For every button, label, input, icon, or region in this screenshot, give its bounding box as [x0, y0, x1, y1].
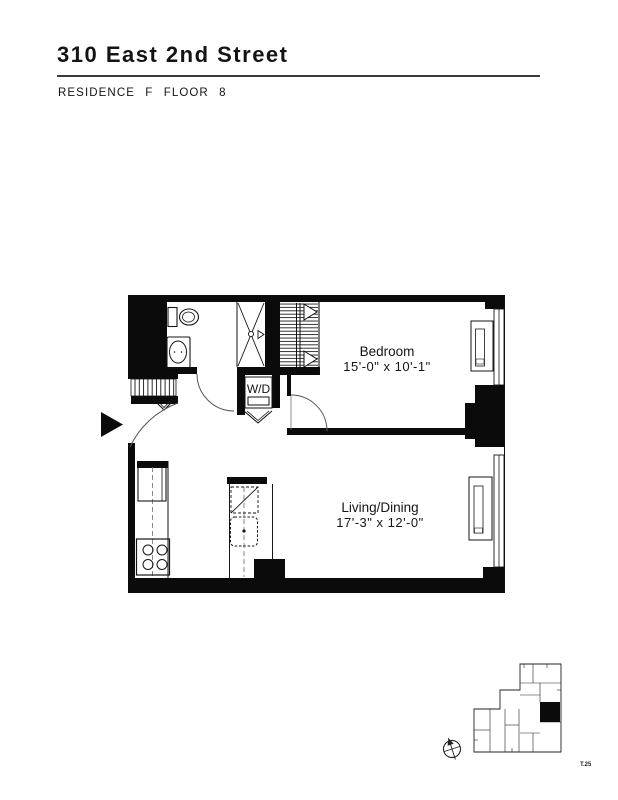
washer-dryer-label: W/D — [247, 382, 271, 396]
toilet-fixture — [168, 308, 199, 327]
entry-door-swing — [130, 403, 178, 447]
closet-hanger-rod — [133, 379, 175, 396]
bathroom-door-swing — [197, 374, 234, 411]
floor-plan-drawing: W/D — [0, 0, 618, 800]
wall-closet-top — [128, 373, 178, 379]
entry-closet — [131, 379, 176, 410]
wall-bottom-right-block — [483, 567, 505, 593]
living-window — [469, 455, 504, 567]
floor-plan-page: 310 East 2nd Street RESIDENCE F FLOOR 8 — [0, 0, 618, 800]
wd-bifold-door — [244, 411, 272, 423]
living-dining-dimensions: 17'-3" x 12'-0" — [336, 515, 423, 530]
shower — [238, 303, 264, 366]
wall-right-mid-step — [465, 403, 475, 439]
wall-top-right-block — [485, 295, 505, 309]
wall-wd-right — [272, 375, 280, 408]
bedroom-dimensions: 15'-0" x 10'-1" — [343, 359, 430, 374]
shower-door-marker — [258, 331, 264, 339]
wall-bottom — [128, 578, 505, 593]
key-plan — [474, 664, 561, 752]
bedroom-window — [471, 309, 504, 385]
sink-fixture — [167, 337, 190, 368]
bathroom — [167, 302, 237, 368]
wall-shower-stairs — [265, 295, 280, 375]
wall-island-cap — [227, 477, 267, 484]
wall-top-left-block — [128, 295, 167, 373]
entry-arrow-icon — [101, 412, 123, 437]
wall-left-lower — [128, 443, 135, 593]
wall-wd-left — [237, 375, 245, 415]
wall-hall-upper — [287, 375, 291, 396]
compass-needle — [445, 737, 453, 746]
wall-right-mid-block — [475, 385, 505, 447]
staircase — [280, 302, 319, 375]
wall-bedroom-living — [287, 428, 467, 435]
washer-dryer-closet: W/D — [244, 377, 272, 423]
key-plan-unit-highlight — [540, 702, 560, 722]
compass-icon — [440, 735, 463, 762]
wall-top — [128, 295, 505, 302]
wall-island-step — [254, 559, 285, 578]
bedroom-door-swing — [291, 395, 327, 431]
wall-wd-stairs-bar — [237, 367, 320, 375]
living-dining-label: Living/Dining — [341, 500, 418, 515]
bedroom-label: Bedroom — [360, 344, 415, 359]
page-number: T.25 — [580, 762, 592, 768]
